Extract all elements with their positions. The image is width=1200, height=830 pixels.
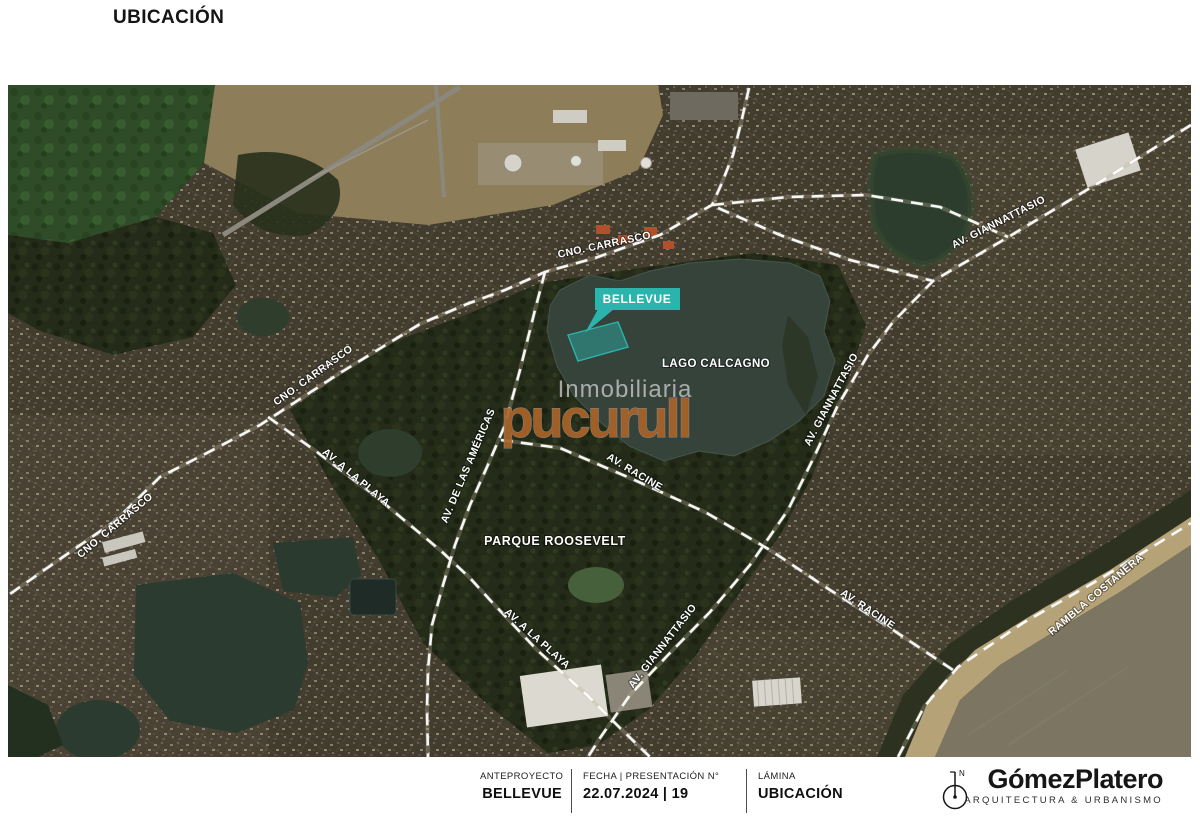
label-parque-roosevelt: PARQUE ROOSEVELT	[484, 534, 626, 548]
brand-tagline: ARQUITECTURA & URBANISMO	[964, 795, 1163, 806]
brand-block: GómezPlatero ARQUITECTURA & URBANISMO	[964, 764, 1163, 806]
presentation-sheet: UBICACIÓN	[0, 0, 1200, 830]
page-title: UBICACIÓN	[113, 7, 224, 29]
footer-divider	[571, 769, 572, 813]
sheet-label: LÁMINA	[758, 771, 796, 782]
satellite-map-svg: BELLEVUE CNO. CARRASCO AV. GIANNATTASIO …	[8, 85, 1191, 757]
footer-divider	[746, 769, 747, 813]
project-label: ANTEPROYECTO	[480, 771, 562, 782]
pond	[237, 298, 289, 336]
brand-name: GómezPlatero	[964, 764, 1163, 794]
date-presentation-label: FECHA | PRESENTACIÓN N°	[583, 771, 719, 782]
flag-label: BELLEVUE	[603, 292, 672, 306]
terminal-building	[504, 154, 522, 172]
parking-lot	[670, 92, 738, 120]
watermark-logo: pucurull	[501, 389, 690, 449]
pond	[358, 429, 422, 477]
project-name: BELLEVUE	[460, 786, 562, 802]
date-presentation-value: 22.07.2024 | 19	[583, 786, 688, 802]
pond	[568, 567, 624, 603]
satellite-map: BELLEVUE CNO. CARRASCO AV. GIANNATTASIO …	[8, 85, 1191, 757]
rect-pool	[350, 579, 396, 615]
label-lago-calcagno: LAGO CALCAGNO	[662, 358, 770, 370]
sheet-name: UBICACIÓN	[758, 786, 843, 802]
